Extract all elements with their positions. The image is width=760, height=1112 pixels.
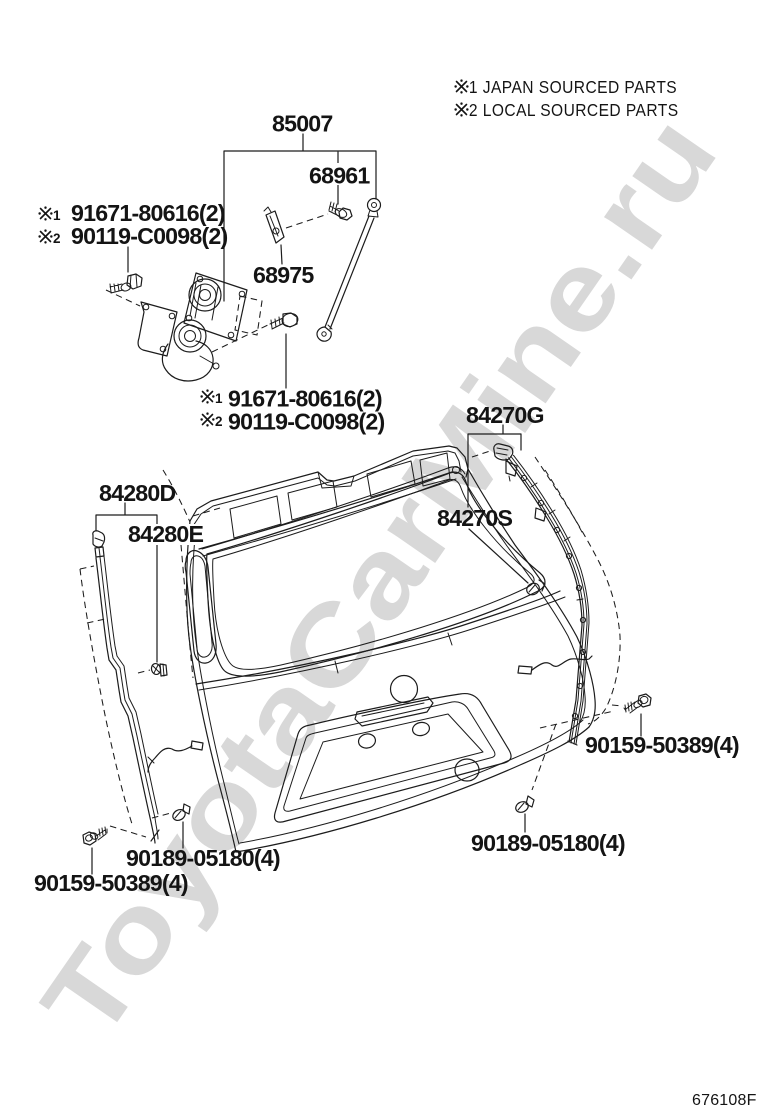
svg-text:68975: 68975 [253, 262, 314, 288]
svg-text:84270S: 84270S [437, 505, 512, 531]
svg-text:1 JAPAN SOURCED PARTS: 1 JAPAN SOURCED PARTS [469, 78, 677, 97]
svg-text:68961: 68961 [309, 163, 370, 189]
svg-text:1: 1 [215, 391, 223, 406]
svg-text:2 LOCAL SOURCED PARTS: 2 LOCAL SOURCED PARTS [469, 101, 679, 120]
svg-text:84280D: 84280D [99, 480, 175, 506]
svg-text:90189-05180(4): 90189-05180(4) [126, 845, 280, 871]
svg-text:90189-05180(4): 90189-05180(4) [471, 830, 625, 856]
svg-text:90119-C0098(2): 90119-C0098(2) [228, 409, 384, 435]
svg-text:84280E: 84280E [128, 521, 203, 547]
svg-text:85007: 85007 [272, 111, 332, 137]
svg-text:90159-50389(4): 90159-50389(4) [585, 732, 739, 758]
svg-text:2: 2 [215, 414, 223, 429]
svg-text:84270G: 84270G [466, 402, 544, 428]
svg-text:90159-50389(4): 90159-50389(4) [34, 870, 188, 896]
svg-text:676108F: 676108F [692, 1092, 757, 1109]
svg-text:1: 1 [53, 208, 61, 223]
svg-text:90119-C0098(2): 90119-C0098(2) [71, 223, 227, 249]
svg-text:2: 2 [53, 231, 61, 246]
